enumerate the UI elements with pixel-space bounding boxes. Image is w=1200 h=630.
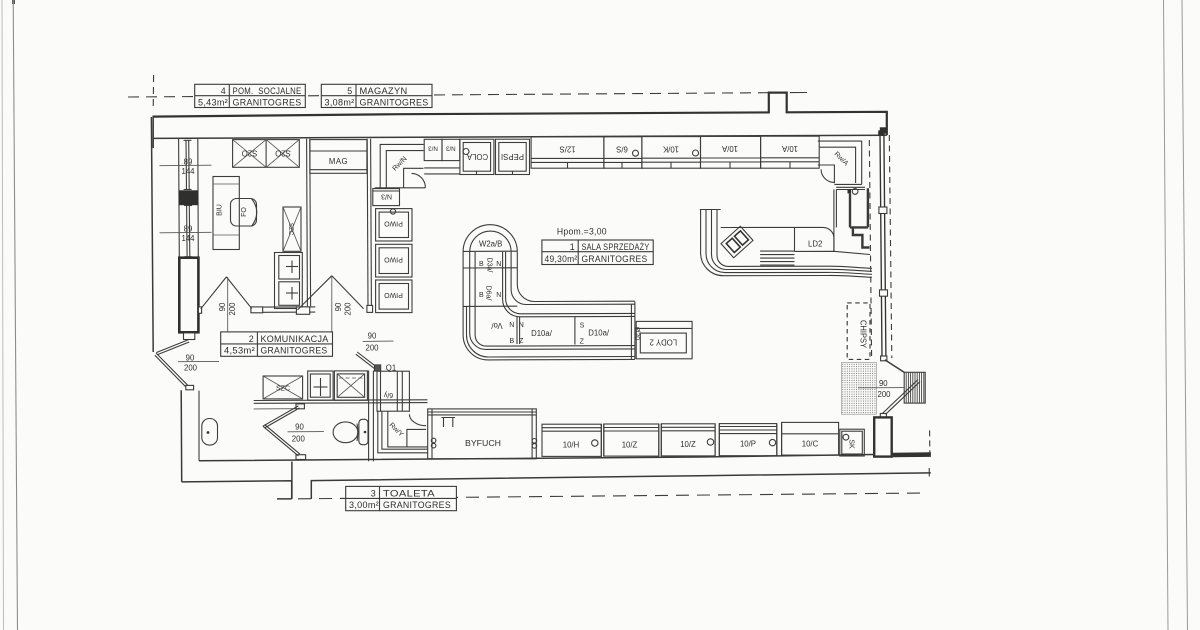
svg-text:D3a/: D3a/ bbox=[485, 258, 492, 273]
svg-text:49,30m²: 49,30m² bbox=[545, 254, 578, 264]
svg-text:COLA: COLA bbox=[466, 152, 488, 161]
svg-text:144: 144 bbox=[181, 167, 195, 176]
svg-text:200: 200 bbox=[184, 363, 198, 372]
svg-text:200: 200 bbox=[344, 302, 353, 316]
svg-text:FO: FO bbox=[241, 207, 248, 217]
svg-text:90: 90 bbox=[295, 422, 304, 431]
svg-text:5: 5 bbox=[347, 86, 352, 96]
svg-text:BIU: BIU bbox=[217, 204, 224, 216]
svg-text:B: B bbox=[479, 292, 484, 299]
svg-text:POM. SOCJALNE: POM. SOCJALNE bbox=[233, 86, 302, 96]
svg-text:3,08m²: 3,08m² bbox=[325, 97, 355, 107]
svg-text:N: N bbox=[496, 261, 501, 268]
svg-text:Z: Z bbox=[580, 339, 585, 346]
svg-text:PEPSI: PEPSI bbox=[501, 152, 524, 161]
svg-text:MAG: MAG bbox=[329, 157, 348, 166]
svg-text:GRANITOGRES: GRANITOGRES bbox=[383, 500, 451, 510]
svg-text:10/A: 10/A bbox=[721, 144, 738, 153]
svg-text:10/H: 10/H bbox=[563, 441, 579, 450]
svg-text:GRANITOGRES: GRANITOGRES bbox=[360, 97, 429, 107]
svg-text:10/Z: 10/Z bbox=[622, 440, 638, 449]
svg-text:90: 90 bbox=[368, 331, 377, 340]
svg-text:SK: SK bbox=[848, 439, 855, 449]
svg-text:10/C: 10/C bbox=[802, 439, 819, 448]
svg-text:S: S bbox=[580, 322, 585, 329]
svg-text:Vo/: Vo/ bbox=[491, 321, 503, 330]
svg-text:1: 1 bbox=[570, 242, 575, 252]
svg-text:3,00m²: 3,00m² bbox=[349, 500, 379, 510]
svg-text:10/K: 10/K bbox=[662, 145, 679, 154]
svg-text:N/3: N/3 bbox=[381, 193, 392, 200]
svg-text:5,43m²: 5,43m² bbox=[198, 97, 228, 107]
svg-text:89: 89 bbox=[184, 157, 193, 166]
svg-text:PIWO: PIWO bbox=[384, 220, 403, 227]
svg-text:B: B bbox=[479, 261, 484, 268]
svg-text:90: 90 bbox=[186, 353, 195, 362]
svg-text:200: 200 bbox=[365, 344, 379, 353]
svg-text:N: N bbox=[509, 322, 514, 329]
svg-text:W2a/B: W2a/B bbox=[479, 240, 502, 249]
svg-text:D6a/: D6a/ bbox=[485, 286, 492, 301]
svg-text:PIWO: PIWO bbox=[384, 291, 403, 298]
svg-text:Hpom.=3,00: Hpom.=3,00 bbox=[557, 226, 607, 236]
svg-text:10/Z: 10/Z bbox=[680, 440, 696, 449]
svg-text:6/S: 6/S bbox=[616, 145, 628, 154]
svg-text:89: 89 bbox=[184, 224, 193, 233]
svg-text:Rw/A: Rw/A bbox=[833, 151, 850, 168]
svg-text:S2O: S2O bbox=[242, 149, 258, 158]
svg-text:10/A: 10/A bbox=[781, 144, 798, 153]
svg-text:LODY 2: LODY 2 bbox=[650, 338, 678, 347]
svg-text:SZC: SZC bbox=[287, 223, 294, 236]
svg-text:4: 4 bbox=[221, 86, 226, 96]
svg-text:B: B bbox=[509, 338, 514, 345]
svg-text:CHIPSY: CHIPSY bbox=[859, 320, 868, 349]
svg-text:200: 200 bbox=[292, 434, 306, 443]
svg-text:200: 200 bbox=[877, 390, 891, 399]
svg-text:N/3: N/3 bbox=[445, 145, 455, 152]
svg-text:12/S: 12/S bbox=[559, 145, 575, 154]
svg-text:90: 90 bbox=[218, 302, 227, 311]
svg-text:MAGAZYN: MAGAZYN bbox=[360, 86, 408, 96]
svg-text:KOMUNIKACJA: KOMUNIKACJA bbox=[261, 334, 329, 344]
svg-text:GRANITOGRES: GRANITOGRES bbox=[582, 254, 648, 264]
svg-text:200: 200 bbox=[228, 302, 237, 316]
svg-text:SZC: SZC bbox=[276, 386, 290, 393]
svg-text:2: 2 bbox=[249, 334, 254, 344]
svg-text:SALA SPRZEDAŻY: SALA SPRZEDAŻY bbox=[582, 242, 650, 252]
svg-text:GRANITOGRES: GRANITOGRES bbox=[233, 97, 302, 107]
svg-text:BYFUCH: BYFUCH bbox=[465, 439, 501, 448]
svg-text:LD2: LD2 bbox=[808, 239, 822, 248]
svg-text:D10a/: D10a/ bbox=[531, 329, 553, 338]
svg-text:PIWO: PIWO bbox=[384, 256, 403, 263]
svg-text:GRANITOGRES: GRANITOGRES bbox=[261, 346, 328, 356]
svg-text:N: N bbox=[496, 292, 501, 299]
svg-text:144: 144 bbox=[181, 234, 195, 243]
svg-text:10/P: 10/P bbox=[740, 440, 756, 449]
svg-text:TOALETA: TOALETA bbox=[383, 488, 435, 498]
svg-text:N/3: N/3 bbox=[428, 145, 438, 152]
svg-text:4,53m²: 4,53m² bbox=[224, 346, 255, 356]
svg-text:90: 90 bbox=[334, 302, 343, 311]
svg-text:D10a/: D10a/ bbox=[588, 329, 610, 338]
svg-text:90: 90 bbox=[879, 379, 888, 388]
svg-text:3: 3 bbox=[371, 488, 376, 498]
svg-text:6/y: 6/y bbox=[383, 391, 393, 398]
svg-text:Rw/Y: Rw/Y bbox=[388, 422, 405, 439]
svg-text:Rw/N: Rw/N bbox=[392, 156, 409, 173]
svg-text:S2O: S2O bbox=[275, 149, 291, 158]
